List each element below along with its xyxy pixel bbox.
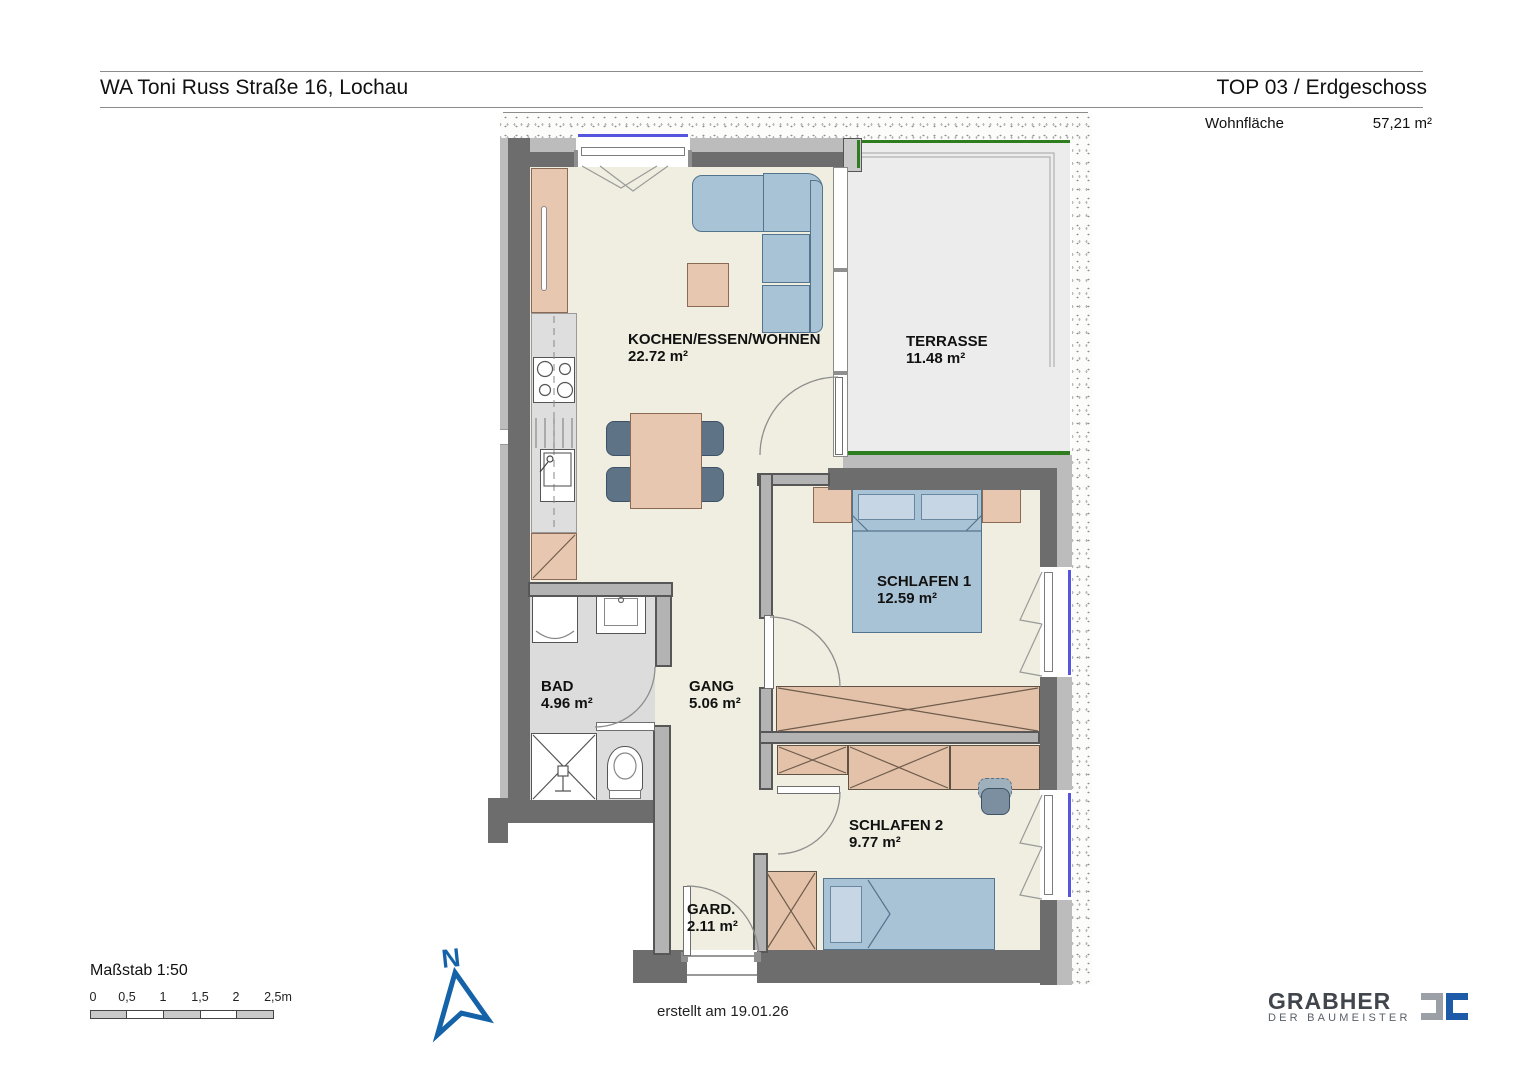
room-area: 5.06 m² [689, 695, 741, 712]
wall-right-inner [1040, 468, 1057, 985]
room-area: 9.77 m² [849, 834, 943, 851]
room-label-terrasse: TERRASSE 11.48 m² [906, 333, 988, 367]
wall-bath-right-upper [655, 595, 672, 667]
wardrobe-schlafen2-a [777, 745, 848, 775]
logo-tagline: DER BAUMEISTER [1268, 1012, 1411, 1024]
created-date: erstellt am 19.01.26 [657, 1003, 789, 1020]
toilet-base [609, 790, 641, 799]
room-label-gang: GANG 5.06 m² [689, 678, 741, 712]
window-sash [1044, 795, 1053, 895]
closet-schlafen2 [765, 871, 817, 951]
north-letter: N [440, 942, 462, 974]
room-label-kochen: KOCHEN/ESSEN/WOHNEN 22.72 m² [628, 331, 821, 365]
wall-bath-right-lower [653, 725, 671, 955]
window-stop [688, 150, 692, 167]
window-blue-line [578, 134, 688, 137]
room-label-schlafen1: SCHLAFEN 1 12.59 m² [877, 573, 971, 607]
terrace-edge-top [845, 140, 1070, 143]
scale-tick: 2,5m [264, 990, 292, 1004]
schlafen2-door-leaf [777, 786, 840, 794]
living-area-value: 57,21 m² [1373, 115, 1432, 132]
room-name: SCHLAFEN 2 [849, 817, 943, 834]
pillow [921, 494, 978, 520]
bath-door-leaf [596, 722, 655, 731]
floorplan-sheet: WA Toni Russ Straße 16, Lochau TOP 03 / … [0, 0, 1527, 1080]
wardrobe-schlafen1 [776, 686, 1040, 733]
exterior-plaster-right [1072, 113, 1092, 985]
room-area: 4.96 m² [541, 695, 593, 712]
wall-right-outer [1057, 455, 1072, 985]
threshold-line [687, 955, 757, 957]
kitchen-sink [540, 449, 575, 502]
coffee-table [687, 263, 729, 307]
scale-tick: 1,5 [191, 990, 208, 1004]
pillow [858, 494, 915, 520]
wardrobe-schlafen2-b [848, 745, 950, 790]
header-rule-bottom [100, 107, 1423, 108]
logo-bracket-gray [1421, 993, 1443, 1020]
window-sash [1044, 572, 1053, 672]
company-logo: GRABHER DER BAUMEISTER [1268, 990, 1468, 1024]
chair-schlafen2 [981, 788, 1010, 815]
room-name: TERRASSE [906, 333, 988, 350]
wall-schlafen1-top [828, 468, 1057, 490]
wall-bath-top [528, 582, 673, 597]
room-label-bad: BAD 4.96 m² [541, 678, 593, 712]
window-stop [574, 150, 578, 167]
green-joint [857, 140, 860, 168]
sofa-seat-top [692, 175, 764, 232]
room-area: 11.48 m² [906, 350, 988, 367]
kitchen-tall-cabinet [531, 168, 568, 313]
stove [533, 357, 575, 403]
sofa-cushion-2 [762, 285, 810, 333]
room-name: GANG [689, 678, 741, 695]
nightstand-left [813, 487, 852, 523]
wall-left-inner [508, 138, 530, 822]
unit-title: TOP 03 / Erdgeschoss [1216, 76, 1427, 100]
logo-bracket-blue [1446, 993, 1468, 1020]
living-area-label: Wohnfläche [1205, 115, 1284, 132]
wall-gard-right [753, 853, 768, 953]
wall-joint [500, 429, 508, 445]
wall-terrace-south-outer [843, 455, 1072, 469]
sofa-backrest-right [810, 180, 823, 333]
door-stop [754, 952, 761, 962]
toilet [607, 746, 643, 792]
header-rule-top [100, 71, 1423, 72]
wall-wardrobe-divider [759, 731, 1040, 744]
pillow [830, 886, 862, 943]
logo-text: GRABHER DER BAUMEISTER [1268, 990, 1411, 1024]
room-area: 12.59 m² [877, 590, 971, 607]
wall-bath-bottom [502, 800, 655, 823]
exterior-notch [488, 823, 653, 953]
logo-name: GRABHER [1268, 990, 1411, 1012]
wall-schlafen2-bottom [757, 950, 1072, 983]
terrace-door-leaf [835, 377, 843, 455]
scale-label: Maßstab 1:50 [90, 962, 188, 980]
sofa-cushion-1 [762, 234, 810, 283]
wall-gang-schlafen1 [759, 473, 773, 619]
window-blue-line [1068, 793, 1071, 897]
project-title: WA Toni Russ Straße 16, Lochau [100, 76, 408, 100]
room-area: 2.11 m² [687, 918, 738, 935]
window-sash [581, 147, 685, 156]
shower [531, 733, 597, 801]
room-label-schlafen2: SCHLAFEN 2 9.77 m² [849, 817, 943, 851]
kitchen-corner-unit [531, 533, 577, 580]
glass-mullion [833, 268, 848, 272]
glass-mullion [833, 371, 848, 375]
logo-mark-icon [1421, 993, 1468, 1020]
scale-tick: 1 [160, 990, 167, 1004]
nightstand-right [982, 487, 1021, 523]
bath-sink-basin [604, 598, 638, 626]
scale-tick: 0 [90, 990, 97, 1004]
scale-tick: 2 [233, 990, 240, 1004]
threshold-line [687, 974, 757, 976]
room-name: SCHLAFEN 1 [877, 573, 971, 590]
north-arrow-icon: N [422, 930, 512, 1060]
floor-terrace [845, 143, 1070, 455]
dining-table [630, 413, 702, 509]
wall-left-outer [500, 138, 508, 822]
room-label-gard: GARD. 2.11 m² [687, 901, 738, 935]
schlafen1-door-leaf [764, 615, 774, 689]
room-area: 22.72 m² [628, 348, 821, 365]
window-blue-line [1068, 570, 1071, 675]
cabinet-handle [541, 206, 547, 291]
scale-tick: 0,5 [118, 990, 135, 1004]
room-name: BAD [541, 678, 593, 695]
room-name: GARD. [687, 901, 738, 918]
washing-machine [532, 596, 578, 643]
room-name: KOCHEN/ESSEN/WOHNEN [628, 331, 821, 348]
